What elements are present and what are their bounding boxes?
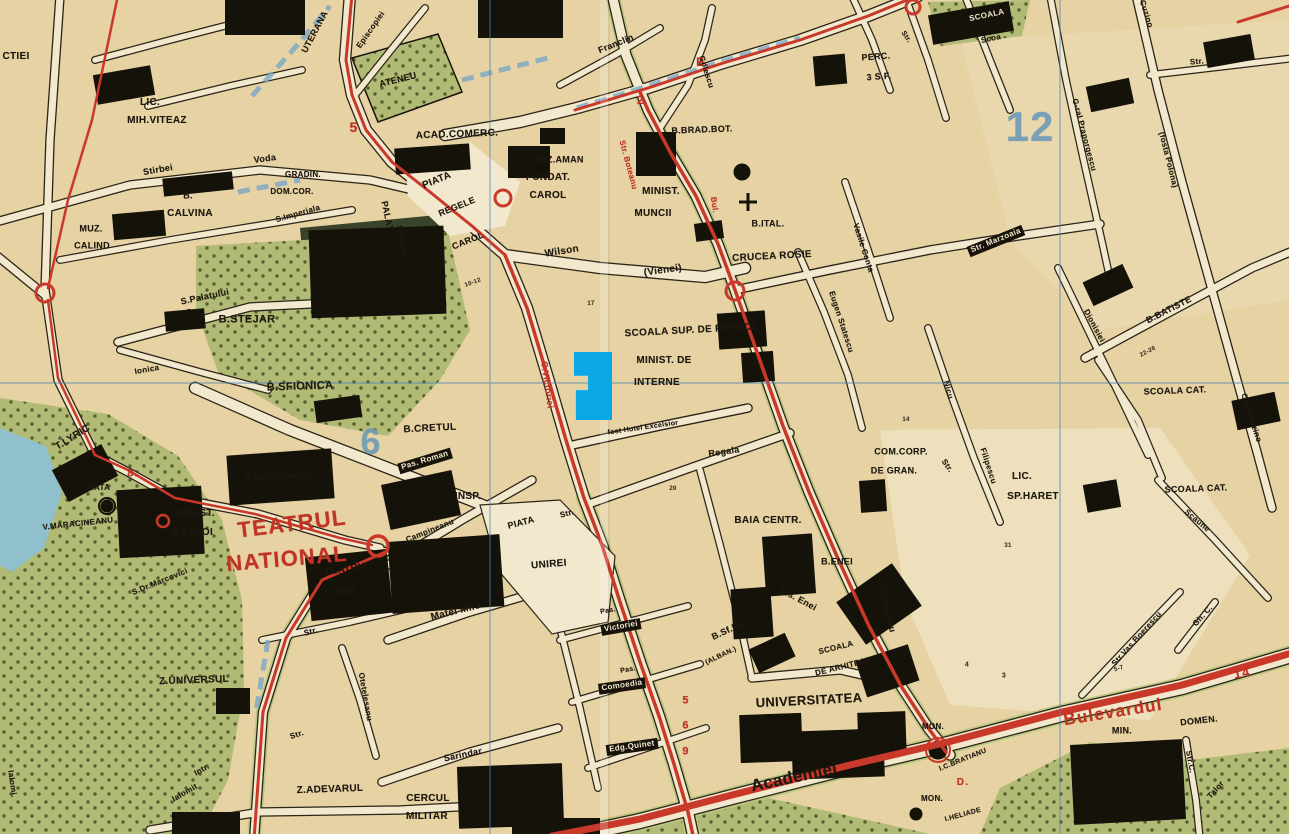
map-label: Episcopiei	[355, 10, 386, 50]
map-label: Talor	[1206, 780, 1226, 801]
map-label: Vasile Conta	[851, 222, 874, 273]
map-label: DE ARHITECT	[814, 656, 871, 677]
map-label: 12	[1006, 106, 1055, 148]
map-label: B.ENEI	[821, 558, 853, 567]
map-label: T.LYRIC	[54, 423, 92, 452]
map-label: S.Dr.Marcovici	[131, 567, 189, 597]
map-label: UTERANA	[300, 10, 330, 55]
map-label: Bul.	[709, 196, 719, 213]
map-label: Pas. Roman	[397, 448, 453, 475]
map-label: SP.HARET	[1007, 492, 1059, 502]
map-label: 3 S.F.	[866, 72, 891, 83]
map-label: 14	[1233, 665, 1252, 681]
map-label: Pas.	[600, 606, 617, 616]
map-label: UNIREI	[531, 558, 567, 571]
map-label: MUZ.AMAN	[532, 156, 583, 165]
map-label: Nicu	[942, 380, 955, 400]
map-label: B.BATISTE	[1145, 295, 1193, 326]
map-label: MINIST.	[177, 509, 215, 519]
map-label: Bulevardul	[1062, 696, 1163, 728]
map-label: REGELE	[437, 196, 476, 219]
map-label: 5-7	[1114, 665, 1125, 674]
map-label: CAROL	[451, 231, 485, 252]
map-label: B.STEJAR	[219, 315, 276, 326]
map-label: Regala	[708, 445, 740, 458]
map-label: 7	[756, 330, 760, 336]
map-label: MIN.	[1112, 727, 1132, 736]
map-label: (Vienei)	[643, 263, 682, 278]
map-label: Cuzino	[1138, 0, 1154, 29]
map-label: Matei Milo	[430, 601, 482, 623]
map-label: LIC.	[1012, 472, 1032, 482]
map-label: CERCUL	[406, 794, 449, 804]
map-label: MUNCII	[634, 209, 671, 219]
map-label: B.CRETUL	[403, 423, 456, 436]
map-label: Ialomit	[171, 783, 199, 804]
map-label: C.Victoriei	[539, 361, 555, 409]
map-label: Wilson	[544, 244, 580, 259]
map-label: FUNDAT.	[526, 173, 570, 183]
map-label: SCOALA CAT.	[1143, 385, 1206, 396]
map-label: fost Hotel Excelsior	[607, 420, 679, 437]
map-label: SCOALA	[818, 640, 854, 656]
map-label: ACAD.COMERC.	[416, 129, 499, 142]
map-label: Bis. Enei	[778, 585, 818, 612]
map-label: 5	[350, 120, 359, 134]
map-label: S.Imperiala	[275, 204, 321, 224]
map-label: Ialomi.	[6, 770, 18, 798]
map-label: PIATA	[507, 515, 536, 531]
map-label: DE GRAN.	[871, 467, 917, 476]
map-label: B.ITAL.	[752, 220, 785, 229]
map-label: S.Palatului	[180, 287, 230, 306]
map-label: RAZBOI	[173, 528, 213, 538]
map-label: CALVINA	[167, 209, 213, 219]
map-label: REGAL	[394, 225, 410, 259]
map-labels-layer: CTIEIUTERANALIC.MIH.VITEAZStirbeiVodaB.C…	[0, 0, 1289, 834]
map-label: MIH.VITEAZ	[127, 116, 187, 126]
map-label: ATENEU	[378, 71, 417, 89]
map-label: Scoa	[980, 33, 1002, 45]
map-label: Voda	[253, 153, 277, 165]
map-label: (ALBAN.)	[704, 646, 737, 667]
map-label: GRADIN.	[285, 171, 321, 179]
map-label: B.SFIONICA	[267, 380, 334, 393]
map-label: 14	[902, 417, 909, 423]
map-label: MON.	[922, 723, 944, 731]
map-label: 6	[360, 424, 381, 460]
map-label: 3	[1002, 673, 1006, 680]
map-label: CAROL	[529, 191, 566, 201]
map-label: Str. Marzoaia	[966, 225, 1025, 257]
map-label: Z.ADEVARUL	[296, 784, 363, 796]
map-label: UNIVERSITATEA	[755, 691, 862, 710]
map-label: V.MARACINEANU	[42, 516, 114, 531]
map-label: Campineanu	[405, 518, 455, 545]
map-label: PERC.	[861, 51, 891, 62]
map-label: 20	[669, 486, 676, 492]
map-label: MILITAR	[406, 812, 448, 822]
map-label: 10-12	[464, 277, 482, 288]
map-label: Academiei	[749, 760, 838, 795]
map-label: MINIST.	[642, 187, 680, 197]
map-label: BAIA CENTR.	[734, 516, 801, 526]
map-label: Sarindar	[443, 747, 483, 764]
map-label: (fosta Polona)	[1157, 131, 1179, 189]
map-label: Z.UNIVERSUL	[159, 675, 229, 687]
map-label: NAT.	[336, 588, 359, 598]
map-label: 2	[637, 94, 645, 106]
map-label: 17	[587, 301, 594, 307]
map-label: Eugen Statescu	[827, 290, 854, 354]
map-label: COM.CORP.	[874, 448, 928, 457]
map-label: MUZ.	[79, 225, 102, 234]
map-label: Dionisiei	[1082, 308, 1106, 344]
map-label: INSP.	[455, 492, 481, 502]
map-label: LIC.	[140, 98, 160, 108]
map-label: I.HELIADE	[944, 807, 982, 823]
map-label: D.	[957, 778, 969, 788]
map-label: G-ral Praporgescu	[1070, 98, 1097, 172]
map-label: SCOALA CAT.	[1164, 483, 1227, 494]
map-label: 22-26	[1139, 345, 1157, 358]
map-label: MINIST. DE	[636, 356, 691, 366]
map-label: Cantacuzino	[1239, 393, 1262, 444]
map-label: 5	[682, 696, 689, 707]
map-label: 31	[1004, 543, 1011, 549]
map-label: I.C.Bratianu	[875, 579, 897, 634]
map-label: Str.C.	[1184, 750, 1196, 774]
map-label: I.C.BRATIANU	[938, 747, 987, 772]
map-label: Gh. C.	[1192, 604, 1215, 628]
map-label: Str.	[791, 564, 803, 578]
map-label: Str.	[1190, 57, 1205, 66]
map-label: DOM.COR.	[270, 188, 313, 196]
map-label: Stirbei	[142, 163, 173, 177]
map-label: Otetelesanu	[357, 672, 373, 722]
map-label: Scaune	[1183, 508, 1211, 534]
map-label: CTIEI	[2, 52, 29, 62]
map-label: B.BRAD.BOT.	[671, 124, 733, 135]
map-label: Str.	[559, 508, 575, 519]
map-label: 9	[682, 747, 689, 758]
map-label: 4	[965, 662, 969, 669]
map-label: Str.	[940, 458, 955, 474]
map-label: Filipescu	[978, 447, 997, 485]
map-label: B.Sf.NIC.	[710, 616, 751, 642]
map-label: Ionica	[134, 364, 160, 376]
map-label: PIATA	[421, 171, 453, 192]
map-label: Str.Vas.Boerescu	[1111, 610, 1164, 668]
map-label: MON.	[921, 795, 943, 803]
map-label: Str.	[289, 729, 305, 741]
map-label: PIATA	[86, 484, 110, 492]
map-label: SCOALA SUP. DE RESBOI	[624, 323, 755, 340]
map-label: B.	[183, 192, 193, 201]
map-label: Pas.	[620, 665, 637, 675]
map-label: E.	[696, 56, 710, 68]
map-label: DOMEN.	[1180, 715, 1219, 728]
map-canvas[interactable]: CTIEIUTERANALIC.MIH.VITEAZStirbeiVodaB.C…	[0, 0, 1289, 834]
map-label: PALAT	[379, 200, 394, 231]
map-label: SCOALA	[966, 6, 1009, 25]
map-label: Intr.	[193, 762, 211, 777]
map-label: Str. Boteanu	[618, 139, 639, 190]
map-label: 8.	[127, 469, 139, 480]
map-label: Edg.Quinet	[606, 738, 659, 756]
map-label: Franclin	[597, 33, 635, 55]
map-label: Victoriei	[600, 618, 641, 636]
map-label: Str.	[900, 30, 913, 44]
map-label: CALIND	[74, 242, 110, 251]
map-label: B.BREZOIANU	[245, 470, 311, 484]
map-label: CRUCEA ROSIE	[732, 250, 812, 264]
map-label: Comoedia	[598, 677, 646, 694]
map-label: TEATRUL	[236, 506, 347, 541]
map-label: INTERNE	[634, 378, 680, 388]
map-label: 6	[682, 721, 689, 732]
map-label: Str.	[303, 626, 319, 637]
